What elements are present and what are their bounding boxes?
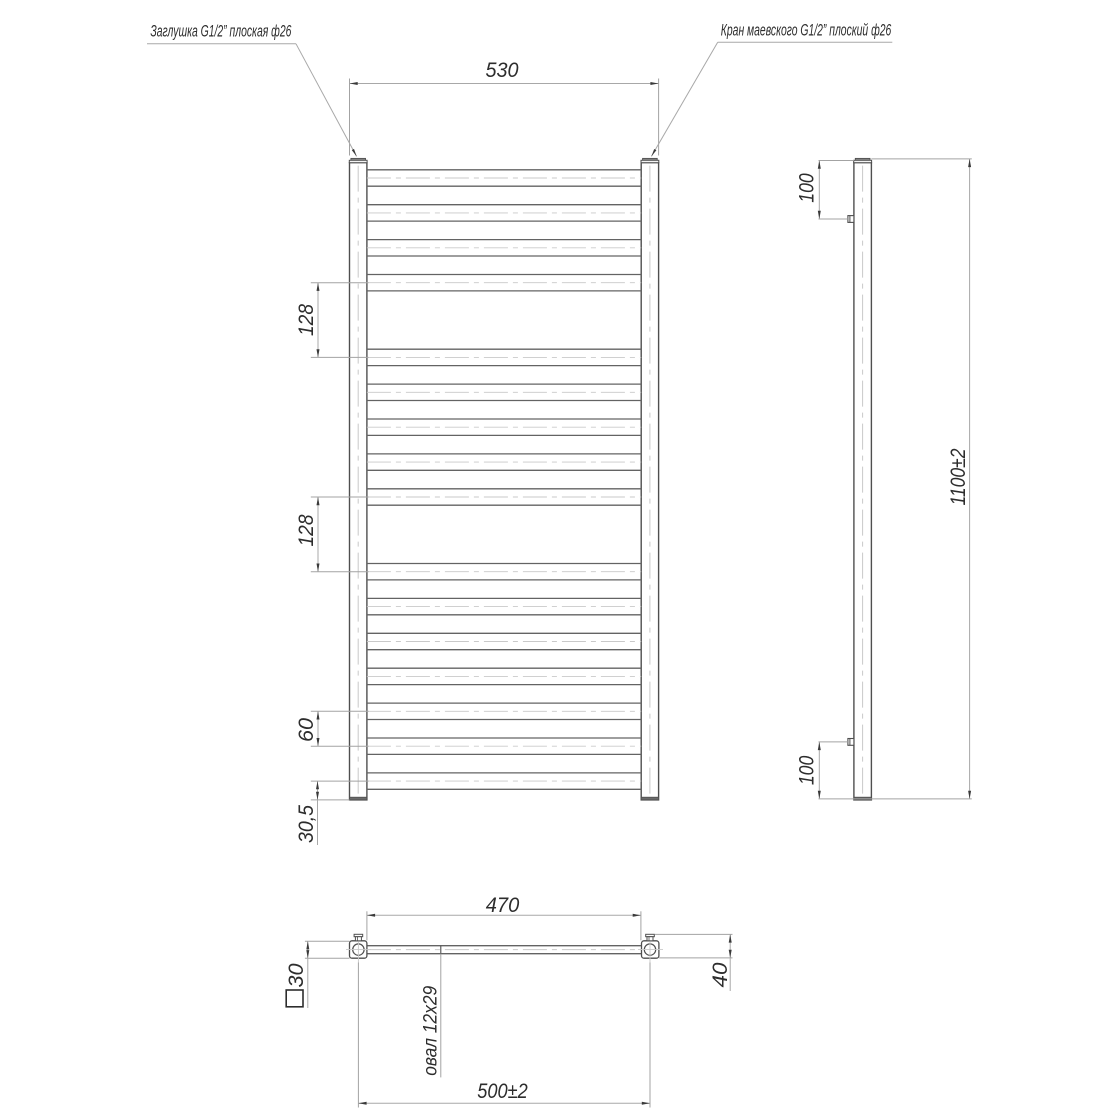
svg-text:30,5: 30,5 — [294, 804, 318, 843]
svg-text:30: 30 — [284, 963, 308, 987]
svg-text:530: 530 — [486, 58, 519, 82]
svg-text:128: 128 — [294, 304, 318, 336]
svg-text:500±2: 500±2 — [477, 1079, 528, 1103]
svg-text:470: 470 — [486, 893, 520, 917]
svg-text:60: 60 — [294, 718, 318, 742]
svg-text:Кран маевского G1/2” плоский ф: Кран маевского G1/2” плоский ф26 — [721, 21, 892, 40]
svg-text:40: 40 — [708, 962, 732, 987]
svg-text:100: 100 — [795, 173, 819, 203]
svg-text:овал 12х29: овал 12х29 — [420, 985, 441, 1075]
svg-text:1100±2: 1100±2 — [946, 448, 970, 505]
svg-text:100: 100 — [795, 756, 819, 786]
svg-text:Заглушка G1/2” плоская ф26: Заглушка G1/2” плоская ф26 — [150, 22, 291, 41]
svg-text:128: 128 — [294, 514, 318, 546]
